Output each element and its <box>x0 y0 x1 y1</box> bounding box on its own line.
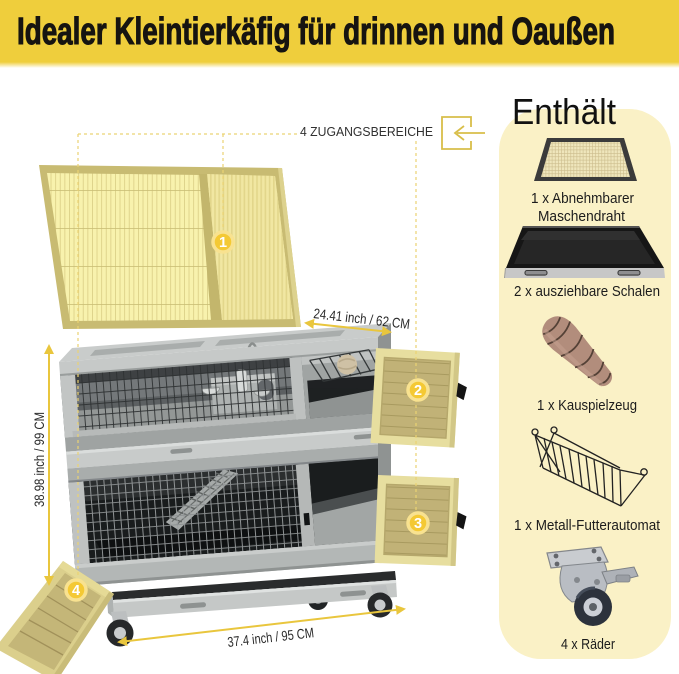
svg-text:1 x Abnehmbarer: 1 x Abnehmbarer <box>531 190 634 207</box>
svg-text:1: 1 <box>219 235 227 251</box>
svg-text:Idealer Kleintierkäfig für dri: Idealer Kleintierkäfig für drinnen und O… <box>17 11 615 53</box>
svg-text:3: 3 <box>414 516 422 532</box>
svg-text:4: 4 <box>72 583 80 599</box>
svg-text:1 x Kauspielzeug: 1 x Kauspielzeug <box>537 397 637 414</box>
svg-text:4 ZUGANGSBEREICHE: 4 ZUGANGSBEREICHE <box>300 124 433 139</box>
svg-text:2: 2 <box>414 383 422 399</box>
svg-text:Enthält: Enthält <box>512 91 616 132</box>
svg-text:4 x Räder: 4 x Räder <box>561 636 615 653</box>
svg-text:38.98 inch / 99 CM: 38.98 inch / 99 CM <box>31 412 47 507</box>
svg-text:2 x ausziehbare Schalen: 2 x ausziehbare Schalen <box>514 283 660 300</box>
svg-text:Maschendraht: Maschendraht <box>538 208 626 225</box>
svg-text:1 x Metall-Futterautomat: 1 x Metall-Futterautomat <box>514 517 661 534</box>
